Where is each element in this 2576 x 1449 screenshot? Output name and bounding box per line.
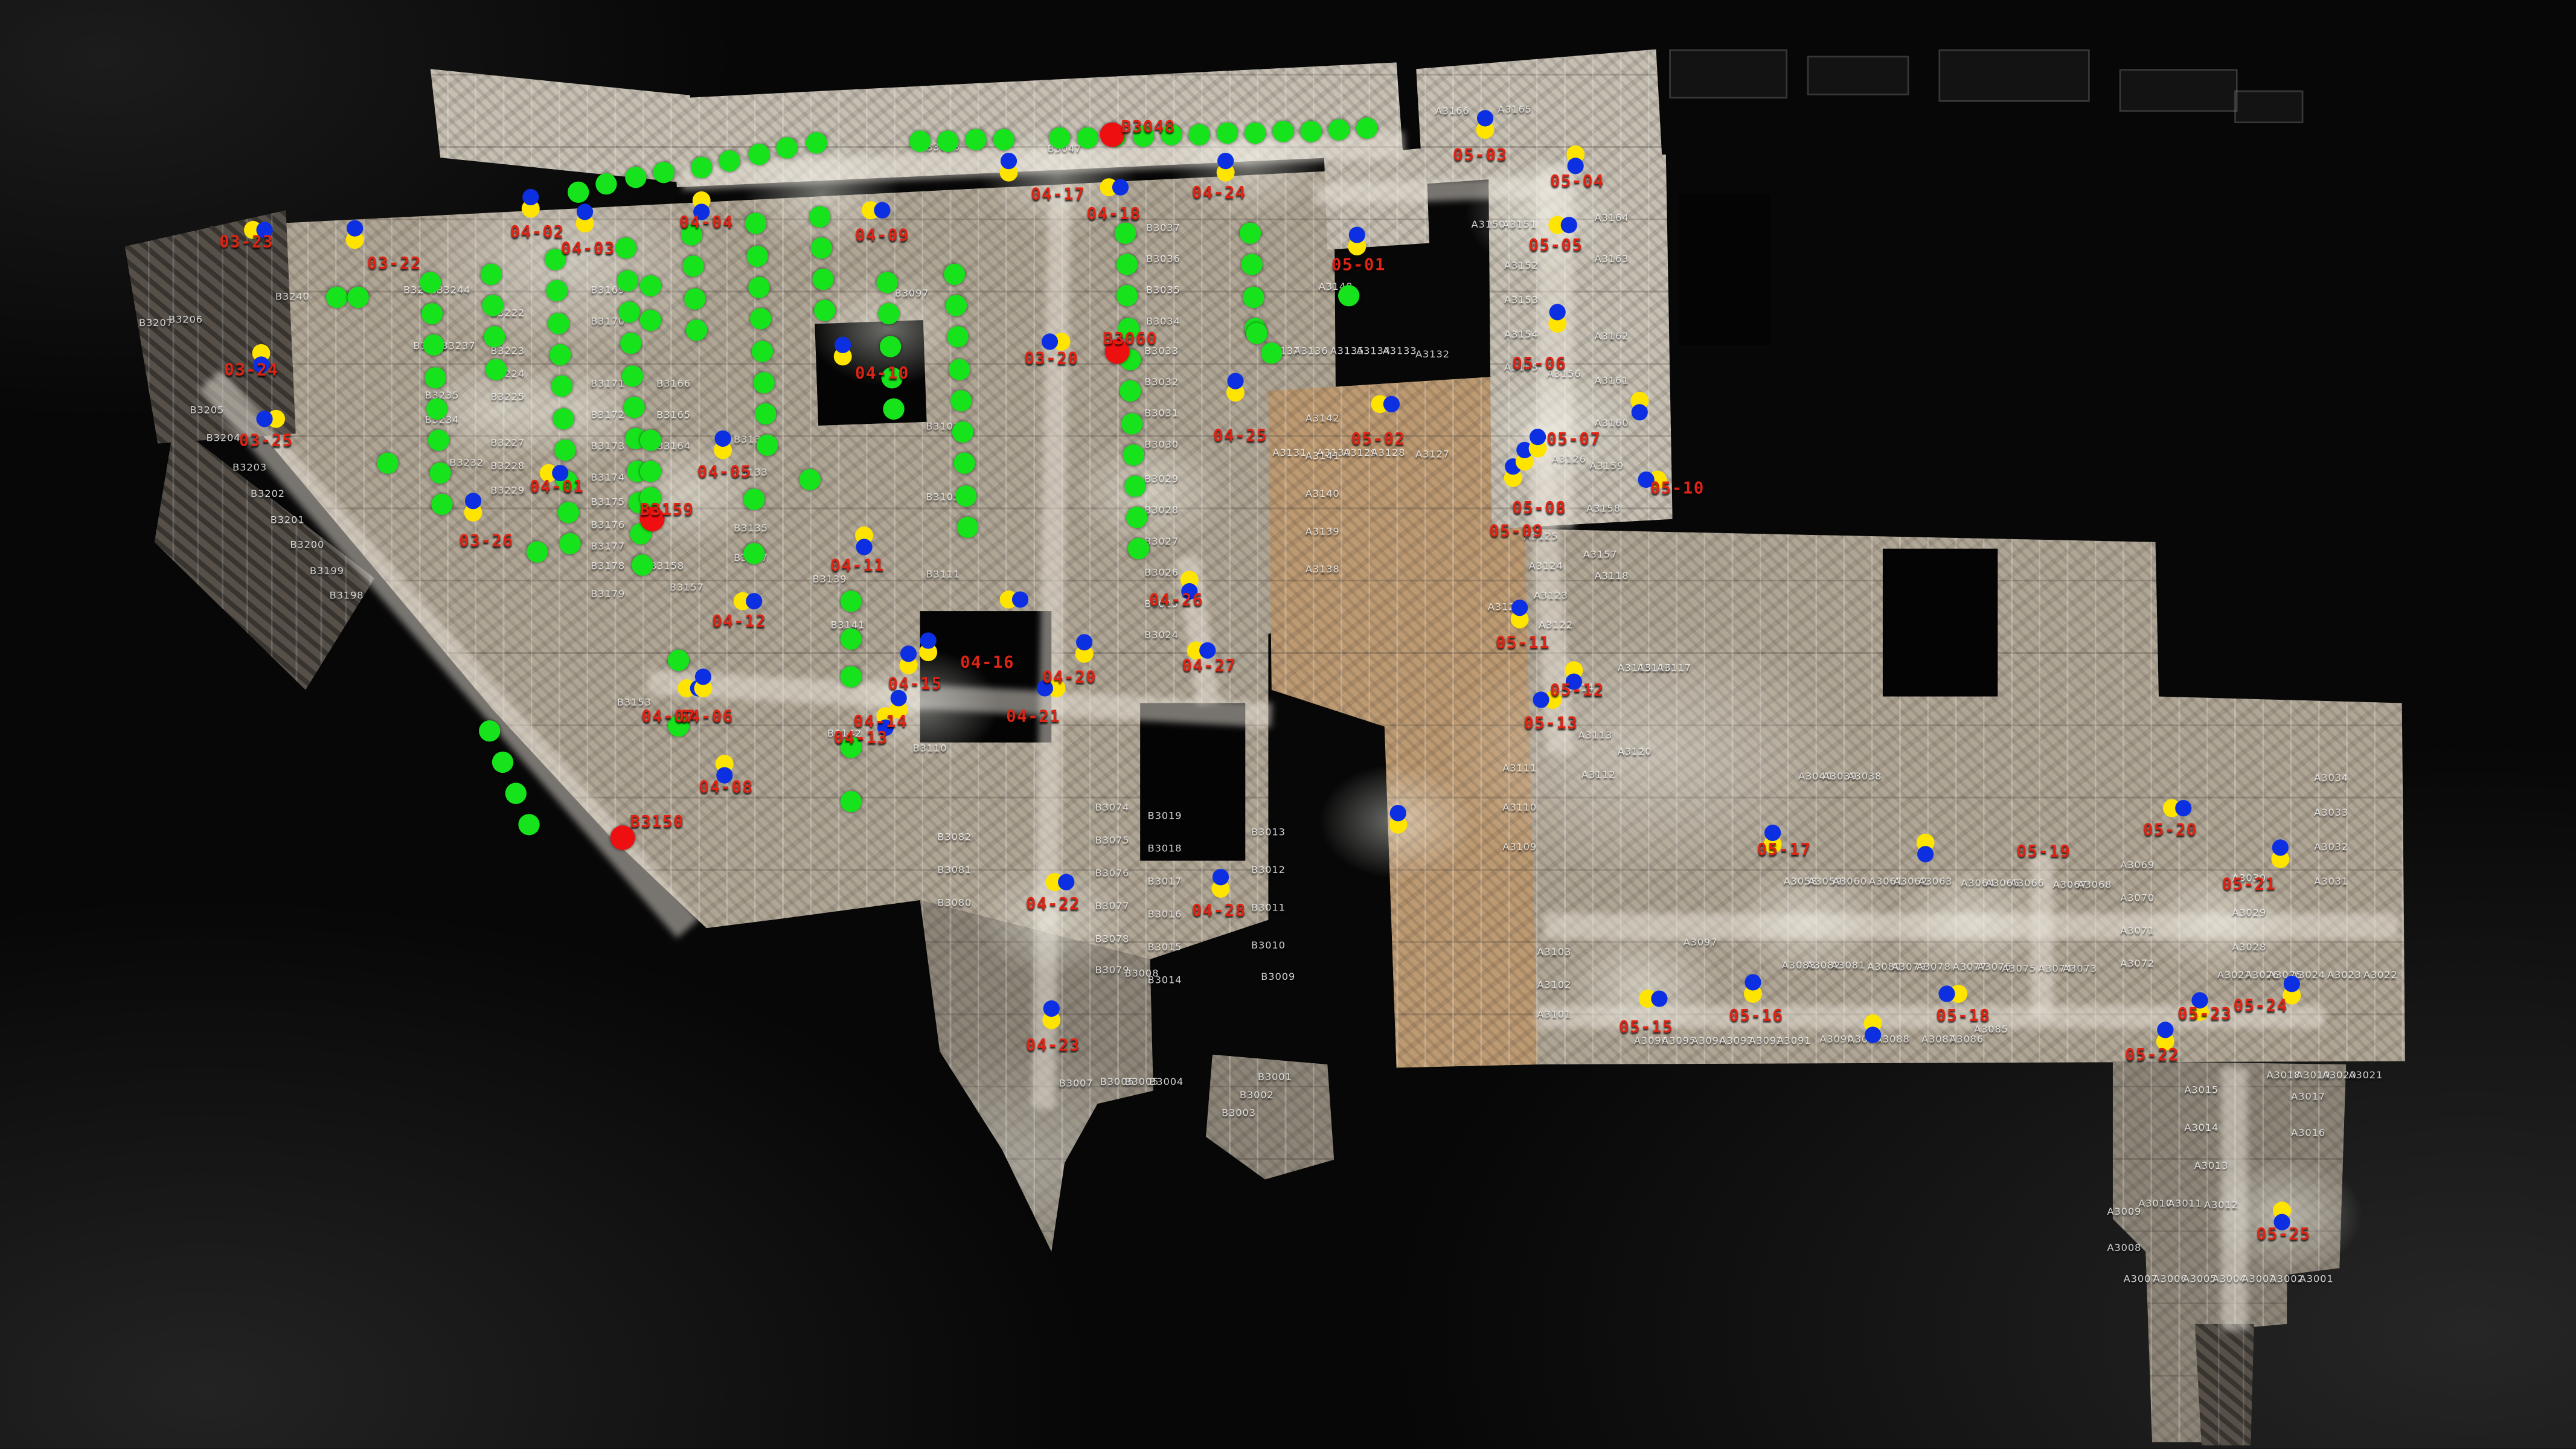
parking-bay-label: A3164 — [1595, 213, 1629, 224]
waypoint-blue-dot — [2284, 976, 2300, 992]
scan-point-complete[interactable] — [719, 150, 740, 171]
scan-position-label: 04-12 — [712, 613, 766, 632]
scan-point-complete[interactable] — [595, 173, 617, 194]
parking-bay-label: A3154 — [1504, 330, 1539, 341]
scan-point-complete[interactable] — [429, 462, 450, 484]
parking-bay-label: A3140 — [1306, 488, 1340, 500]
waypoint-blue-dot — [1561, 217, 1577, 233]
scan-point-complete[interactable] — [745, 213, 766, 234]
scan-position-label: 05-10 — [1650, 481, 1705, 499]
parking-bay-label: A3124 — [1529, 561, 1563, 572]
scan-point-complete[interactable] — [1117, 285, 1138, 306]
scan-point-complete[interactable] — [755, 403, 776, 424]
parking-bay-label: A3032 — [2314, 842, 2348, 853]
waypoint-blue-dot — [577, 203, 593, 220]
scan-position-label: 05-20 — [2143, 822, 2197, 840]
scan-point-complete[interactable] — [1115, 223, 1136, 244]
scan-position-label: 03-20 — [1024, 351, 1078, 369]
scan-point-complete[interactable] — [640, 461, 661, 482]
parking-bay-label: A3009 — [2107, 1206, 2141, 1218]
scan-point-complete[interactable] — [811, 237, 832, 258]
scan-point-complete[interactable] — [481, 264, 502, 285]
waypoint-blue-dot — [1383, 396, 1400, 412]
scan-point-complete[interactable] — [1121, 413, 1142, 434]
scan-position-label: 04-25 — [1213, 428, 1267, 446]
scan-position-label: 05-25 — [2257, 1226, 2311, 1244]
scan-point-complete[interactable] — [549, 344, 571, 365]
scan-point-complete[interactable] — [559, 533, 580, 554]
waypoint-blue-dot — [1199, 642, 1216, 659]
scan-point-complete[interactable] — [1245, 123, 1266, 144]
waypoint-blue-dot — [856, 539, 872, 555]
scan-position-label: 05-15 — [1619, 1019, 1673, 1037]
scan-point-complete[interactable] — [1328, 119, 1350, 140]
scan-point-complete[interactable] — [377, 453, 398, 474]
parking-bay-label: B3205 — [190, 405, 224, 417]
scan-point-complete[interactable] — [757, 435, 778, 456]
scan-point-complete[interactable] — [841, 590, 862, 612]
scan-point-complete[interactable] — [568, 182, 589, 203]
scan-point-complete[interactable] — [1049, 127, 1070, 149]
waypoint-blue-dot — [1076, 634, 1092, 650]
scan-point-complete[interactable] — [953, 453, 975, 474]
scan-position-label: B3150 — [630, 814, 684, 832]
scan-point-complete[interactable] — [841, 666, 862, 687]
scan-point-complete[interactable] — [950, 390, 972, 411]
parking-bay-label: A3123 — [1534, 590, 1568, 602]
parking-bay-label: A3141 — [1306, 451, 1340, 462]
scan-point-complete[interactable] — [1243, 287, 1264, 308]
scan-point-complete[interactable] — [1188, 124, 1210, 145]
parking-bay-label: B3237 — [441, 341, 476, 353]
parking-bay-label: A3126 — [1552, 454, 1586, 465]
waypoint-blue-dot — [900, 645, 917, 662]
scan-point-complete[interactable] — [748, 144, 769, 165]
parking-bay-label: B3010 — [1251, 941, 1286, 952]
scan-point-complete[interactable] — [615, 237, 636, 258]
scan-position-label: 05-24 — [2234, 998, 2288, 1016]
void-cutout — [1883, 549, 1998, 697]
scan-point-complete[interactable] — [1356, 118, 1377, 139]
floorplan-scan-map: B3055B3047B3240B3243B3244B3222B3223B3224… — [0, 0, 2576, 1449]
scan-position-label: 04-07 — [641, 709, 696, 727]
parking-bay-label: A3152 — [1504, 260, 1539, 272]
void-cutout — [1140, 703, 1245, 860]
scan-point-complete[interactable] — [743, 488, 764, 510]
parking-bay-label: A3142 — [1306, 413, 1340, 424]
parking-bay-label: A3160 — [1595, 418, 1629, 429]
waypoint-blue-dot — [465, 493, 481, 509]
scan-position-label: 03-24 — [224, 362, 278, 380]
ghost-structure — [1807, 56, 1909, 95]
scan-point-complete[interactable] — [799, 469, 821, 490]
scan-position-label: 05-18 — [1936, 1008, 1990, 1026]
parking-bay-label: A3069 — [2120, 860, 2155, 871]
parking-bay-label: A3016 — [2291, 1128, 2325, 1139]
scan-position-label: 05-05 — [1528, 237, 1583, 255]
scan-point-complete[interactable] — [806, 132, 827, 153]
scan-point-complete[interactable] — [617, 270, 638, 292]
scan-point-complete[interactable] — [485, 359, 507, 380]
scan-point-complete[interactable] — [624, 397, 645, 418]
parking-bay-label: B3076 — [1095, 868, 1129, 880]
scan-point-complete[interactable] — [750, 308, 771, 329]
parking-bay-label: A3111 — [1502, 763, 1537, 775]
scan-point-complete[interactable] — [518, 814, 539, 835]
ghost-structure — [2234, 91, 2303, 123]
scan-point-complete[interactable] — [558, 502, 579, 523]
scan-point-complete[interactable] — [421, 303, 443, 324]
parking-bay-label: B3082 — [937, 832, 972, 843]
parking-bay-label: A3008 — [2107, 1243, 2141, 1254]
scan-point-complete[interactable] — [546, 280, 568, 301]
parking-bay-label: A3151 — [1502, 219, 1537, 231]
parking-bay-label: B3177 — [591, 541, 625, 552]
parking-bay-label: A3023 — [2327, 970, 2362, 982]
scan-point-complete[interactable] — [993, 129, 1014, 150]
parking-bay-label: B3200 — [290, 540, 324, 551]
scan-point-complete[interactable] — [957, 517, 978, 538]
parking-bay-label: B3004 — [1149, 1076, 1184, 1088]
scan-position-label: 05-12 — [1550, 682, 1604, 700]
parking-bay-label: A3078 — [1917, 962, 1951, 973]
scan-position-label: B3060 — [1103, 331, 1158, 349]
scan-point-complete[interactable] — [777, 137, 798, 158]
parking-bay-label: A3014 — [2184, 1123, 2219, 1134]
scan-position-label: 05-01 — [1331, 257, 1386, 275]
parking-bay-label: B3229 — [490, 485, 525, 497]
scan-point-complete[interactable] — [622, 365, 643, 386]
scan-point-complete[interactable] — [620, 333, 641, 354]
parking-bay-label: A3001 — [2299, 1274, 2334, 1285]
scan-point-complete[interactable] — [949, 359, 970, 380]
scan-point-complete[interactable] — [426, 398, 447, 420]
scan-point-complete[interactable] — [691, 157, 712, 178]
parking-bay-label: B3204 — [207, 433, 241, 444]
scan-point-complete[interactable] — [841, 629, 862, 650]
scan-point-complete[interactable] — [1128, 538, 1149, 559]
void-cutout — [1679, 194, 1771, 345]
parking-bay-label: A3136 — [1294, 346, 1328, 357]
waypoint-blue-dot — [1349, 226, 1365, 243]
parking-bay-label: A3029 — [2232, 907, 2266, 919]
parking-bay-label: B3206 — [168, 315, 203, 326]
scan-glow — [1071, 435, 1229, 550]
scan-point-complete[interactable] — [748, 277, 769, 298]
parking-bay-label: B3009 — [1261, 971, 1295, 983]
parking-bay-label: A3086 — [1949, 1034, 1984, 1046]
waypoint-blue-dot — [1938, 985, 1955, 1002]
scan-point-complete[interactable] — [937, 130, 958, 152]
scan-position-label: 05-06 — [1512, 356, 1566, 374]
scan-point-complete[interactable] — [876, 272, 897, 293]
parking-bay-label: A3157 — [1583, 549, 1618, 561]
scan-point-complete[interactable] — [492, 752, 513, 773]
parking-bay-label: B3201 — [271, 515, 305, 526]
parking-bay-label: A3161 — [1595, 376, 1629, 387]
scan-position-label: 04-11 — [830, 558, 885, 576]
waypoint-blue-dot — [1042, 333, 1058, 350]
parking-bay-label: B3018 — [1148, 843, 1182, 855]
parking-bay-label: B3017 — [1148, 876, 1182, 888]
waypoint-blue-dot — [695, 668, 711, 685]
scan-point-complete[interactable] — [909, 130, 931, 152]
scan-position-label: 04-23 — [1026, 1037, 1080, 1055]
parking-bay-label: B3016 — [1148, 909, 1182, 921]
waypoint-blue-dot — [835, 337, 851, 353]
parking-bay-label: B3202 — [251, 488, 285, 500]
scan-point-complete[interactable] — [883, 398, 904, 420]
scan-point-complete[interactable] — [640, 275, 661, 296]
scan-point-complete[interactable] — [841, 791, 862, 812]
waypoint-blue-dot — [715, 430, 731, 447]
scan-point-complete[interactable] — [812, 269, 833, 290]
scan-point-complete[interactable] — [1123, 444, 1144, 465]
scan-point-complete[interactable] — [965, 129, 986, 150]
scan-point-complete[interactable] — [347, 287, 368, 308]
scan-position-label: 04-13 — [834, 730, 888, 748]
scan-position-label: 05-16 — [1729, 1008, 1783, 1026]
scan-position-label: 04-05 — [697, 464, 752, 482]
scan-position-label: B3159 — [640, 502, 694, 520]
parking-bay-label: B3032 — [1144, 377, 1179, 388]
scan-point-complete[interactable] — [955, 485, 976, 507]
parking-bay-label: B3165 — [656, 410, 691, 421]
scan-point-complete[interactable] — [625, 167, 646, 188]
parking-bay-label: B3227 — [490, 438, 525, 449]
parking-bay-label: B3075 — [1095, 835, 1129, 846]
parking-bay-label: B3036 — [1146, 254, 1181, 265]
parking-bay-label: B3027 — [1144, 536, 1179, 548]
scan-position-label: 05-23 — [2177, 1006, 2232, 1024]
scan-point-complete[interactable] — [1338, 285, 1359, 306]
parking-bay-label: A3017 — [2291, 1092, 2325, 1103]
scan-position-label: B3048 — [1121, 119, 1176, 137]
scan-point-complete[interactable] — [1240, 223, 1261, 244]
scan-point-complete[interactable] — [420, 272, 441, 293]
scan-point-complete[interactable] — [952, 421, 973, 443]
scan-point-complete[interactable] — [527, 541, 548, 562]
parking-bay-label: B3034 — [1146, 316, 1181, 328]
waypoint-blue-dot — [1112, 179, 1129, 196]
parking-bay-label: A3120 — [1618, 747, 1652, 758]
parking-bay-label: A3103 — [1537, 947, 1571, 958]
waypoint-blue-dot — [2157, 1022, 2173, 1038]
scan-position-label: 04-15 — [888, 676, 942, 694]
parking-bay-label: A3011 — [2168, 1198, 2202, 1210]
parking-bay-label: B3030 — [1144, 440, 1179, 451]
scan-point-complete[interactable] — [1120, 380, 1141, 401]
scan-point-complete[interactable] — [684, 288, 705, 309]
ghost-structure — [1669, 50, 1787, 99]
parking-bay-label: B3164 — [656, 441, 691, 453]
scan-point-complete[interactable] — [425, 367, 446, 388]
waypoint-blue-dot — [1745, 974, 1761, 990]
scan-position-label: 04-02 — [510, 224, 565, 242]
parking-bay-label: B3223 — [490, 346, 525, 357]
parking-bay-label: B3139 — [813, 574, 847, 586]
scan-position-label: 04-01 — [530, 479, 584, 497]
scan-point-complete[interactable] — [1300, 121, 1321, 142]
scan-point-complete[interactable] — [326, 287, 347, 308]
waypoint-blue-dot — [1865, 1026, 1881, 1043]
parking-bay-label: A3165 — [1498, 104, 1532, 116]
parking-bay-label: A3109 — [1502, 842, 1537, 853]
parking-bay-label: A3066 — [2010, 878, 2045, 889]
scan-point-complete[interactable] — [878, 303, 899, 324]
parking-bay-label: A3012 — [2204, 1200, 2238, 1211]
scan-position-label: 05-13 — [1523, 715, 1578, 734]
parking-bay-label: B3232 — [449, 458, 484, 469]
scan-point-complete[interactable] — [428, 429, 449, 450]
parking-bay-label: A3133 — [1383, 346, 1417, 357]
parking-bay-label: A3033 — [2314, 807, 2348, 819]
scan-point-complete[interactable] — [553, 408, 574, 429]
parking-bay-label: B3228 — [490, 461, 525, 472]
scan-position-label: 04-04 — [679, 214, 734, 232]
parking-bay-label: A3127 — [1415, 449, 1450, 461]
scan-point-complete[interactable] — [682, 255, 703, 277]
parking-bay-label: B3081 — [937, 865, 972, 876]
scan-point-complete[interactable] — [423, 334, 444, 356]
scan-point-complete[interactable] — [554, 440, 575, 461]
parking-bay-label: B3179 — [591, 589, 625, 600]
scan-point-complete[interactable] — [752, 341, 773, 362]
scan-point-complete[interactable] — [1261, 342, 1282, 363]
scan-point-complete[interactable] — [1246, 323, 1267, 344]
parking-bay-label: B3240 — [275, 292, 310, 303]
waypoint-blue-dot — [1632, 404, 1648, 420]
parking-bay-label: B3111 — [926, 569, 960, 581]
scan-position-label: 04-09 — [855, 228, 909, 246]
parking-bay-label: A3159 — [1589, 461, 1624, 472]
scan-point-complete[interactable] — [632, 554, 653, 575]
parking-bay-label: A3081 — [1831, 960, 1865, 971]
scan-point-complete[interactable] — [1241, 254, 1262, 275]
parking-bay-label: B3110 — [912, 743, 947, 755]
parking-bay-label: B3153 — [617, 697, 652, 709]
scan-point-complete[interactable] — [482, 295, 504, 316]
parking-bay-label: A3060 — [1833, 876, 1867, 888]
scan-position-label: 04-10 — [855, 365, 909, 383]
parking-bay-label: A3028 — [2232, 942, 2266, 953]
parking-bay-label: B3031 — [1144, 408, 1179, 420]
parking-bay-label: B3011 — [1251, 903, 1286, 914]
scan-point-complete[interactable] — [640, 310, 661, 331]
scan-position-label: 05-22 — [2125, 1047, 2179, 1065]
scan-point-complete[interactable] — [753, 372, 774, 393]
parking-bay-label: A3131 — [1272, 447, 1307, 459]
scan-position-label: 04-18 — [1087, 206, 1141, 224]
scan-point-complete[interactable] — [947, 326, 968, 347]
parking-bay-label: A3139 — [1306, 526, 1340, 538]
scan-position-label: 04-27 — [1182, 658, 1236, 676]
scan-position-label: 04-03 — [561, 241, 615, 259]
scan-point-complete[interactable] — [618, 301, 639, 322]
waypoint-blue-dot — [1568, 158, 1584, 174]
parking-bay-label: B3015 — [1148, 942, 1182, 953]
scan-point-complete[interactable] — [548, 313, 569, 334]
scan-point-complete[interactable] — [1217, 123, 1238, 144]
parking-bay-label: A3117 — [1657, 663, 1691, 674]
parking-bay-label: A3075 — [2002, 964, 2036, 975]
scan-point-complete[interactable] — [1077, 127, 1098, 149]
scan-point-complete[interactable] — [944, 264, 965, 285]
parking-bay-label: A3118 — [1595, 571, 1629, 582]
scan-point-complete[interactable] — [747, 246, 768, 267]
parking-bay-label: B3198 — [330, 590, 364, 602]
scan-position-label: 04-17 — [1031, 187, 1085, 205]
scan-point-complete[interactable] — [686, 319, 707, 341]
waypoint-blue-dot — [1511, 600, 1528, 616]
waypoint-blue-dot — [256, 411, 272, 427]
parking-bay-label: A3034 — [2314, 773, 2348, 784]
waypoint-blue-dot — [347, 220, 363, 237]
waypoint-blue-dot — [1917, 846, 1934, 862]
scan-point-complete[interactable] — [431, 494, 452, 515]
scan-point-complete[interactable] — [809, 206, 830, 227]
scan-point-complete[interactable] — [1124, 476, 1145, 497]
scan-position-label: 05-03 — [1453, 147, 1507, 165]
parking-bay-label: A3091 — [1777, 1035, 1812, 1047]
scan-position-label: 03-23 — [219, 234, 274, 252]
scan-point-complete[interactable] — [484, 326, 505, 347]
parking-bay-label: A3102 — [1537, 980, 1571, 991]
parking-bay-label: B3158 — [650, 561, 684, 572]
parking-bay-label: B3028 — [1144, 505, 1179, 517]
parking-bay-label: B3176 — [591, 520, 625, 531]
scan-position-label: 05-02 — [1351, 431, 1406, 449]
parking-bay-label: A3072 — [2120, 959, 2155, 970]
parking-bay-label: B3225 — [490, 392, 525, 403]
scan-position-label: 04-26 — [1149, 592, 1203, 610]
scan-point-complete[interactable] — [505, 782, 527, 804]
scan-point-complete[interactable] — [1117, 254, 1138, 275]
parking-bay-label: B3135 — [734, 523, 768, 535]
parking-bay-label: B3199 — [310, 566, 344, 577]
parking-bay-label: B3013 — [1251, 827, 1286, 839]
scan-point-complete[interactable] — [668, 650, 689, 671]
scan-point-complete[interactable] — [653, 162, 674, 183]
scan-point-complete[interactable] — [743, 543, 764, 564]
parking-bay-label: A3070 — [2120, 893, 2155, 904]
parking-bay-label: A3031 — [2314, 876, 2348, 888]
parking-bay-label: B3166 — [656, 379, 691, 390]
scan-point-complete[interactable] — [1126, 507, 1147, 528]
parking-bay-label: B3008 — [1124, 968, 1159, 980]
parking-bay-label: B3001 — [1258, 1072, 1292, 1083]
waypoint-blue-dot — [1043, 1000, 1060, 1017]
waypoint-blue-dot — [522, 189, 539, 205]
scan-point-complete[interactable] — [814, 300, 835, 321]
parking-bay-label: A3162 — [1595, 331, 1629, 342]
scan-point-complete[interactable] — [640, 429, 661, 450]
scan-position-label: 04-24 — [1192, 185, 1246, 203]
parking-bay-label: A3015 — [2184, 1085, 2219, 1096]
waypoint-blue-dot — [874, 202, 890, 219]
parking-bay-label: B3026 — [1144, 568, 1179, 579]
waypoint-blue-dot — [1012, 591, 1028, 607]
parking-bay-label: B3012 — [1251, 865, 1286, 876]
waypoint-blue-dot — [1477, 110, 1493, 126]
scan-point-complete[interactable] — [946, 295, 967, 316]
scan-point-complete[interactable] — [551, 376, 572, 397]
scan-point-complete[interactable] — [479, 720, 500, 741]
scan-point-complete[interactable] — [880, 336, 901, 357]
scan-point-complete[interactable] — [1272, 121, 1293, 142]
scan-position-label: 05-21 — [2222, 876, 2276, 894]
parking-bay-label: A3073 — [2063, 964, 2097, 975]
